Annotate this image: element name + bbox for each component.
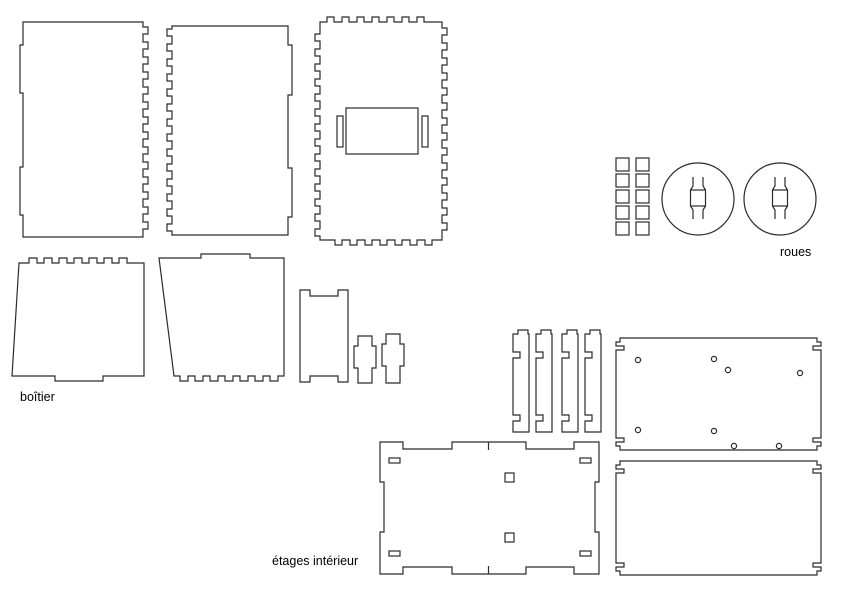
- side-panel-right: [167, 26, 292, 235]
- shelf-plate-with-holes: [616, 338, 821, 450]
- axle-hub-slits: [773, 177, 788, 219]
- back-panel-motor-mount: [315, 17, 447, 245]
- square-hole: [505, 473, 514, 482]
- small-panel-ears: [300, 290, 348, 382]
- spacer-squares: [616, 158, 649, 235]
- tab-slot: [580, 458, 591, 463]
- wheel-right: [744, 163, 816, 235]
- tab-slot: [580, 551, 591, 556]
- mount-hole: [711, 428, 716, 433]
- tab-slot: [389, 551, 400, 556]
- plan-drawing: boîtier roues étages intérieur: [0, 0, 842, 595]
- side-panel-left: [20, 22, 148, 237]
- box-panel-bottom-tabs: [159, 254, 284, 381]
- square-hole: [505, 533, 514, 542]
- mount-hole: [725, 367, 730, 372]
- label-etages-interieur: étages intérieur: [272, 554, 358, 568]
- mount-hole: [635, 357, 640, 362]
- laser-cut-plan: boîtier roues étages intérieur: [0, 0, 842, 595]
- box-panel-top-tabs: [12, 258, 144, 381]
- shelf-plate-plain: [616, 461, 821, 575]
- mount-hole: [731, 443, 736, 448]
- wheel-left: [662, 163, 734, 235]
- mount-hole: [711, 356, 716, 361]
- axle-hub-square: [773, 190, 788, 206]
- axle-hub-slits: [691, 177, 706, 219]
- label-boitier: boîtier: [20, 390, 55, 404]
- small-bracket-2: [382, 334, 404, 383]
- mount-hole: [776, 443, 781, 448]
- axle-hub-square: [691, 190, 706, 206]
- mount-hole: [635, 427, 640, 432]
- small-bracket-1: [354, 336, 376, 383]
- shelf-rails: [513, 330, 601, 432]
- motor-slot-right: [422, 116, 428, 147]
- motor-slot-left: [337, 116, 343, 147]
- motor-cutout: [346, 108, 418, 154]
- mount-hole: [797, 370, 802, 375]
- interior-base-plate: [380, 442, 599, 574]
- tab-slot: [389, 458, 400, 463]
- label-roues: roues: [780, 245, 811, 259]
